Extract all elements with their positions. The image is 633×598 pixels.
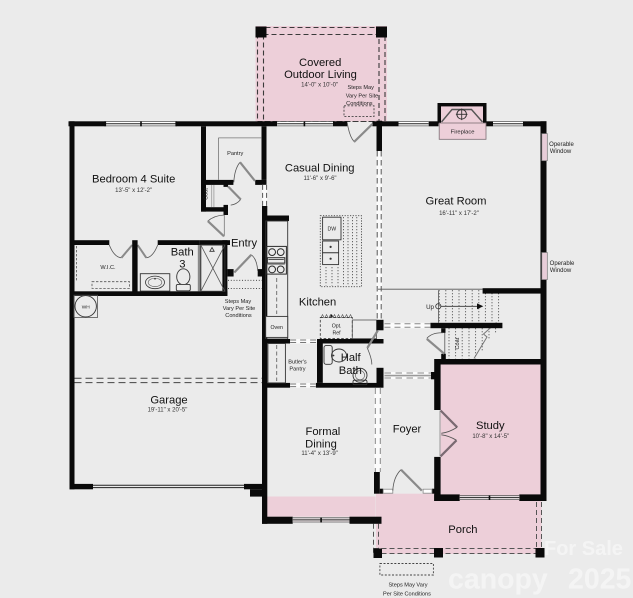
svg-text:canopy: canopy xyxy=(448,564,548,596)
svg-text:Garage: Garage xyxy=(150,395,187,407)
svg-text:11'-4" x 13'-9": 11'-4" x 13'-9" xyxy=(301,451,337,457)
svg-text:16'-11" x 17'-2": 16'-11" x 17'-2" xyxy=(439,211,479,217)
svg-text:Kitchen: Kitchen xyxy=(299,297,336,309)
svg-text:Window: Window xyxy=(550,268,572,274)
svg-text:Opt.: Opt. xyxy=(332,323,342,329)
svg-text:2025: 2025 xyxy=(568,564,632,596)
svg-text:11'-6" x 9'-6": 11'-6" x 9'-6" xyxy=(303,176,336,182)
svg-text:WH: WH xyxy=(82,304,91,310)
svg-text:Conditions: Conditions xyxy=(346,101,373,107)
svg-text:Conditions: Conditions xyxy=(225,313,252,319)
svg-text:Fireplace: Fireplace xyxy=(451,130,475,136)
svg-text:Window: Window xyxy=(550,149,572,155)
svg-text:Entry: Entry xyxy=(231,238,258,250)
svg-text:Steps May Vary: Steps May Vary xyxy=(388,583,427,589)
svg-text:Vary Per Site: Vary Per Site xyxy=(346,94,379,100)
svg-text:Bedroom 4 Suite: Bedroom 4 Suite xyxy=(92,174,175,186)
svg-text:Dining: Dining xyxy=(305,439,337,451)
svg-text:Vary Per Site: Vary Per Site xyxy=(223,306,256,312)
svg-text:Foyer: Foyer xyxy=(393,424,422,436)
svg-text:Pantry: Pantry xyxy=(227,151,243,157)
svg-text:14'-0" x 10'-0": 14'-0" x 10'-0" xyxy=(301,83,338,89)
svg-text:Operable: Operable xyxy=(550,261,575,267)
svg-text:Up: Up xyxy=(426,304,434,311)
svg-text:19'-11" x 20'-5": 19'-11" x 20'-5" xyxy=(148,407,188,413)
svg-text:Butler's: Butler's xyxy=(288,360,307,366)
svg-text:For Sale: For Sale xyxy=(544,538,623,560)
svg-text:Coat: Coat xyxy=(455,337,461,349)
svg-text:Bath: Bath xyxy=(339,365,362,377)
svg-text:Great Room: Great Room xyxy=(426,196,487,208)
svg-text:Ref: Ref xyxy=(333,330,342,336)
svg-text:Per Site Conditions: Per Site Conditions xyxy=(383,592,431,598)
svg-text:Formal: Formal xyxy=(305,426,340,438)
svg-text:13'-5" x 12'-2": 13'-5" x 12'-2" xyxy=(115,188,152,194)
svg-text:10'-8" x 14'-5": 10'-8" x 14'-5" xyxy=(472,434,509,440)
svg-text:Pantry: Pantry xyxy=(289,367,305,373)
svg-text:Coat: Coat xyxy=(204,188,210,200)
svg-text:Operable: Operable xyxy=(549,142,574,148)
svg-text:Oven: Oven xyxy=(270,325,283,331)
svg-text:Porch: Porch xyxy=(448,524,477,536)
svg-text:DW: DW xyxy=(327,227,336,233)
svg-text:Casual Dining: Casual Dining xyxy=(285,162,355,174)
svg-text:Bath: Bath xyxy=(171,247,194,259)
svg-text:Steps May: Steps May xyxy=(347,85,374,91)
svg-text:Half: Half xyxy=(341,352,362,364)
svg-text:W.I.C.: W.I.C. xyxy=(100,265,116,271)
svg-text:Covered: Covered xyxy=(299,57,341,69)
svg-text:Steps May: Steps May xyxy=(225,299,252,305)
svg-text:Study: Study xyxy=(476,420,505,432)
svg-text:3: 3 xyxy=(179,259,185,271)
svg-text:Outdoor Living: Outdoor Living xyxy=(284,69,357,81)
